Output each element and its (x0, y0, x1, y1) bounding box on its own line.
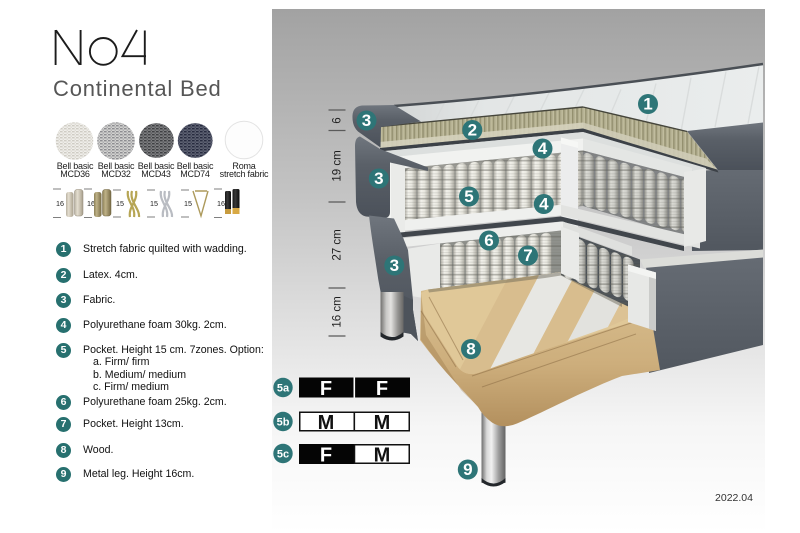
svg-text:8: 8 (466, 340, 475, 359)
svg-text:3: 3 (374, 169, 383, 188)
svg-text:7: 7 (523, 246, 532, 265)
svg-text:M: M (318, 412, 335, 434)
svg-text:16 cm: 16 cm (332, 296, 344, 327)
svg-text:5a: 5a (277, 383, 290, 395)
svg-text:2022.04: 2022.04 (715, 492, 753, 504)
svg-text:4: 4 (539, 195, 549, 214)
svg-text:5: 5 (464, 187, 473, 206)
svg-text:6: 6 (332, 117, 344, 123)
svg-text:M: M (374, 412, 391, 434)
svg-text:F: F (376, 378, 388, 400)
svg-text:9: 9 (463, 460, 472, 479)
svg-text:F: F (320, 445, 332, 467)
svg-text:4: 4 (538, 139, 548, 158)
svg-text:5c: 5c (277, 449, 289, 461)
svg-text:5b: 5b (277, 417, 290, 429)
svg-text:6: 6 (484, 231, 493, 250)
svg-text:3: 3 (390, 256, 399, 275)
svg-text:1: 1 (643, 95, 652, 114)
svg-text:3: 3 (362, 111, 371, 130)
svg-text:27 cm: 27 cm (332, 229, 344, 260)
svg-text:2: 2 (468, 121, 477, 140)
svg-text:19 cm: 19 cm (332, 150, 344, 181)
svg-text:M: M (374, 445, 391, 467)
svg-text:F: F (320, 378, 332, 400)
